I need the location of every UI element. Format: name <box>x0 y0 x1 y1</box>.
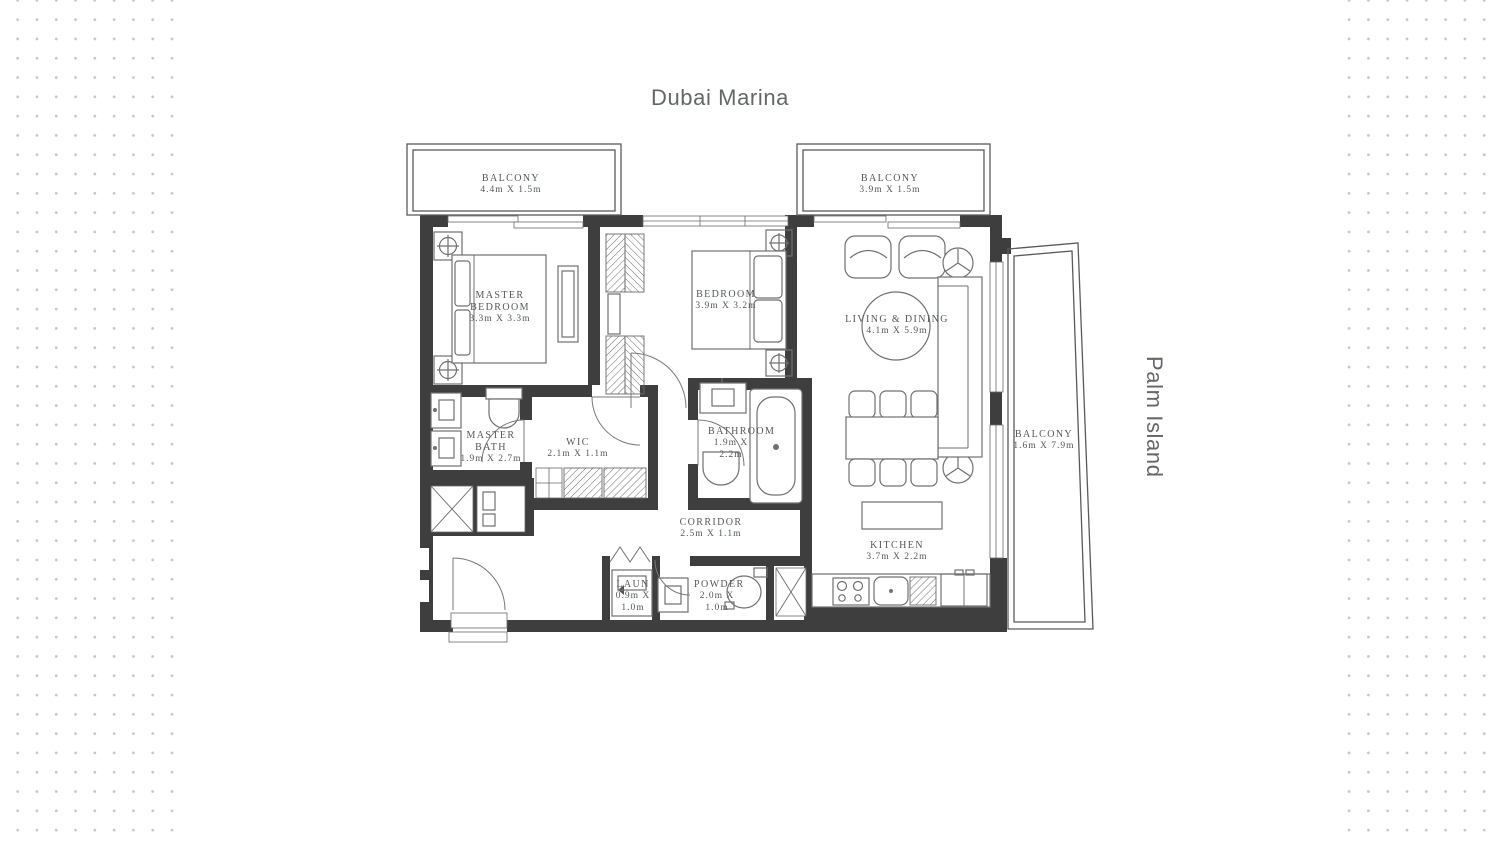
hall-closet <box>477 486 525 532</box>
bedroom-wardrobe <box>606 234 644 394</box>
room-label-balcony-top-right: BALCONY 3.9m X 1.5m <box>825 173 955 197</box>
wic-shelves <box>536 468 646 498</box>
armchairs <box>845 236 945 278</box>
kitchen-counter <box>812 570 990 607</box>
room-label-kitchen: KITCHEN 3.7m X 2.2m <box>837 540 957 564</box>
room-label-balcony-top-left: BALCONY 4.4m X 1.5m <box>446 173 576 197</box>
master-dresser <box>558 266 578 342</box>
area-label-palm-island: Palm Island <box>1141 356 1167 478</box>
room-label-balcony-right: BALCONY 1.6m X 7.9m <box>984 429 1104 453</box>
dishwasher <box>910 577 936 605</box>
room-label-powder: POWDER 2.0m X 1.0m <box>694 579 740 614</box>
entrance-door <box>449 558 507 642</box>
kitchen-island <box>862 502 942 529</box>
dining-set <box>846 391 938 486</box>
room-label-master-bath: MASTER BATH 1.9m X 2.7m <box>459 430 523 466</box>
floor-plan-svg <box>0 0 1500 842</box>
room-label-master-bedroom: MASTER BEDROOM 3.3m X 3.3m <box>454 290 546 326</box>
room-label-bathroom: BATHROOM 1.9m X 2.2m <box>708 426 754 461</box>
room-label-corridor: CORRIDOR 2.5m X 1.1m <box>651 517 771 541</box>
room-label-bedroom: BEDROOM 3.9m X 3.2m <box>656 289 796 313</box>
sofa <box>938 277 982 457</box>
room-label-laundry: LAUN 0.9m X 1.0m <box>613 579 653 614</box>
room-label-wic: WIC 2.1m X 1.1m <box>523 437 633 461</box>
room-label-living-dining: LIVING & DINING 4.1m X 5.9m <box>812 314 982 338</box>
area-label-dubai-marina: Dubai Marina <box>595 85 845 111</box>
